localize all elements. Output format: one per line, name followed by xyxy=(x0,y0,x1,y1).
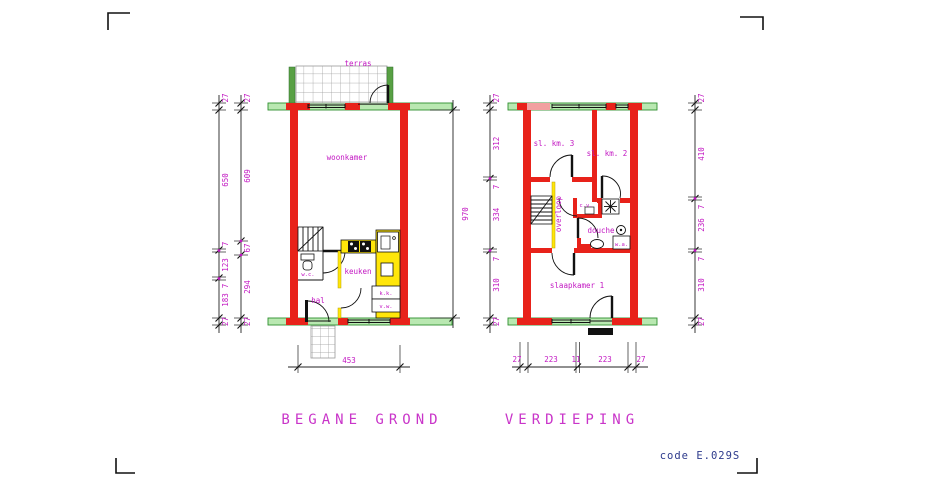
bedroom3-door xyxy=(550,155,572,177)
bedroom3-label: sl. km. 3 xyxy=(534,139,575,148)
ground-floor-plan: terras woonkamer keuken hal w.c. k.k. v.… xyxy=(268,59,452,358)
dim-uf-r-3: 236 xyxy=(697,218,706,232)
kk-label: k.k. xyxy=(379,291,392,297)
dim-uf-b-1: 223 xyxy=(544,355,558,364)
dim-gf-ol-3: 123 xyxy=(221,258,230,272)
dim-uf-r-1: 410 xyxy=(697,147,706,161)
corner-mark-bottom-left xyxy=(116,458,135,473)
ground-dim-left-inner: 27 609 67 294 27 xyxy=(234,93,252,333)
drawing-code: code E.029S xyxy=(660,450,741,462)
woonkamer-label: woonkamer xyxy=(327,153,368,162)
dim-uf-b-3: 223 xyxy=(598,355,612,364)
dim-gf-ol-5: 183 xyxy=(221,293,230,307)
dim-uf-r-2: 7 xyxy=(697,205,706,210)
balcony-door xyxy=(588,296,613,335)
douche-label: douche xyxy=(587,226,615,235)
bedroom2-door xyxy=(602,176,620,198)
dim-gf-il-0: 27 xyxy=(243,93,252,102)
dim-uf-l-2: 7 xyxy=(492,185,501,190)
fan-icon xyxy=(604,200,617,213)
upper-dim-left: 27 312 7 334 7 310 27 xyxy=(483,93,501,333)
ground-staircase xyxy=(298,227,323,251)
hal-keuken-divider xyxy=(338,251,361,318)
dim-gf-il-3: 294 xyxy=(243,280,252,294)
bedroom1-door xyxy=(552,253,574,275)
kitchen-counter xyxy=(341,240,376,253)
dim-uf-b-4: 27 xyxy=(636,355,645,364)
dim-total-height: 970 xyxy=(461,207,470,221)
bedroom1-label: slaapkamer 1 xyxy=(550,281,604,290)
dim-gf-il-1: 609 xyxy=(243,169,252,183)
upper-dim-bottom: 27 223 11 223 27 xyxy=(512,342,648,373)
terras-label: terras xyxy=(344,59,371,68)
wa-label: w.a. xyxy=(615,242,628,248)
dim-gf-ol-4: 7 xyxy=(221,284,230,289)
dim-uf-r-4: 7 xyxy=(697,257,706,262)
shower-drain-dot xyxy=(620,229,622,231)
dim-uf-l-4: 7 xyxy=(492,257,501,262)
ground-dim-left-outer: 27 650 7 123 7 183 27 xyxy=(212,93,230,333)
wc-label: w.c. xyxy=(301,272,314,278)
keuken-label: keuken xyxy=(344,267,371,276)
ground-inner-door xyxy=(323,251,345,273)
ventilation-unit xyxy=(602,199,619,214)
corner-marks xyxy=(108,13,763,473)
vw-label: v.w. xyxy=(379,304,392,310)
entry-path-tiles xyxy=(311,326,335,358)
dim-gf-il-2: 67 xyxy=(243,243,252,252)
dim-gf-ol-6: 27 xyxy=(221,317,230,326)
door-step xyxy=(588,328,613,335)
dim-uf-b-0: 27 xyxy=(512,355,521,364)
floor-plan-sheet: terras woonkamer keuken hal w.c. k.k. v.… xyxy=(0,0,942,497)
ground-floor-title: BEGANE GROND xyxy=(281,412,442,428)
upper-floor-title: VERDIEPING xyxy=(505,412,639,428)
landing-label: overloop xyxy=(554,195,563,232)
dim-gf-ol-2: 7 xyxy=(221,242,230,247)
toilet-cistern xyxy=(301,254,314,260)
dim-gf-ol-1: 650 xyxy=(221,173,230,187)
dim-gf-il-4: 27 xyxy=(243,317,252,326)
corner-mark-top-right xyxy=(740,17,763,30)
dim-uf-r-6: 27 xyxy=(697,317,706,326)
upper-floor-plan: sl. km. 3 sl. km. 2 overloop c.v. douche… xyxy=(508,103,657,335)
dim-gf-ol-0: 27 xyxy=(221,93,230,102)
upper-staircase xyxy=(531,196,552,224)
floor-plan-drawing: terras woonkamer keuken hal w.c. k.k. v.… xyxy=(0,0,942,497)
cv-label: c.v. xyxy=(579,203,592,209)
terras-tile-grid xyxy=(296,66,387,103)
upper-dim-right: 27 410 7 236 7 310 27 xyxy=(688,93,706,333)
dim-uf-l-6: 27 xyxy=(492,317,501,326)
terras-post-left xyxy=(289,67,295,103)
hal-label: hal xyxy=(311,296,325,305)
toilet-bowl xyxy=(303,261,312,270)
dim-uf-l-5: 310 xyxy=(492,278,501,292)
washbasin xyxy=(591,240,604,249)
dim-gf-bottom: 453 xyxy=(342,356,356,365)
dim-uf-b-2: 11 xyxy=(571,355,580,364)
corner-mark-top-left xyxy=(108,13,130,30)
dim-uf-l-0: 27 xyxy=(492,93,501,102)
bedroom2-label: sl. km. 2 xyxy=(587,149,628,158)
dim-uf-r-5: 310 xyxy=(697,278,706,292)
dim-uf-l-1: 312 xyxy=(492,137,501,151)
kitchen-unit xyxy=(381,263,393,276)
ground-dim-height: 970 xyxy=(430,100,470,328)
dim-uf-l-3: 334 xyxy=(492,207,501,221)
dim-uf-r-0: 27 xyxy=(697,93,706,102)
party-wall-pink-segment xyxy=(527,103,550,110)
ground-dim-bottom: 453 xyxy=(288,345,410,373)
